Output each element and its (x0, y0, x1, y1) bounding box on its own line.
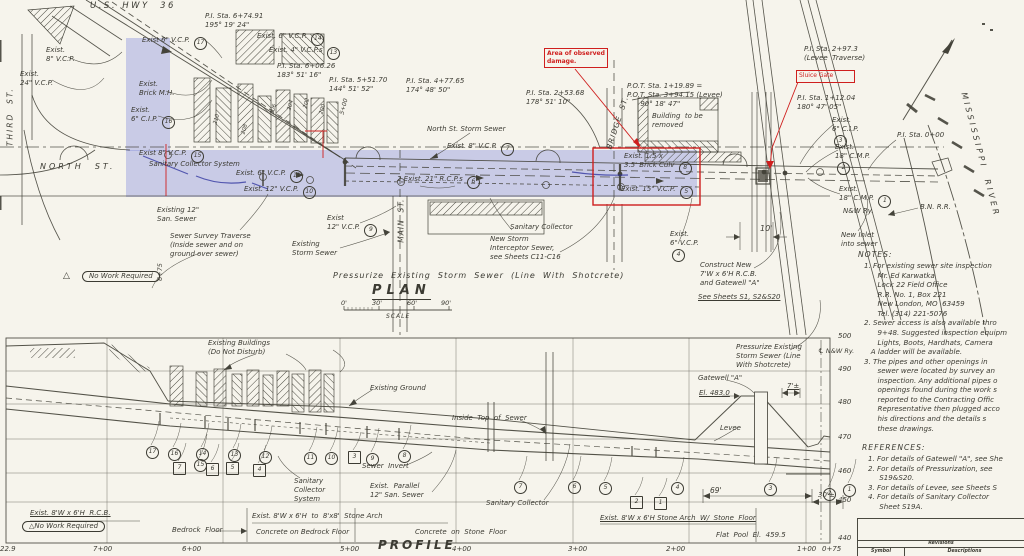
existing-buildings-label: Existing Buildings (Do Not Disturb) (208, 339, 270, 357)
sanitary-collector-mid-label: Sanitary Collector (510, 223, 573, 232)
exist-6in-vcp-14-label: Exist. 6" V.C.P. 14 (257, 32, 324, 46)
exist-8in-vcp-label: Exist. 8" V.C.P. (46, 46, 75, 64)
pipe-id-marker: 8 (679, 162, 692, 175)
profile-box-marker: 3 (348, 451, 361, 464)
elev-470: 470 (838, 433, 851, 442)
pipe-id-marker: 11 (290, 170, 303, 183)
dim-10ft-label: 10' (760, 224, 772, 234)
sewer-survey-traverse-label: Sewer Survey Traverse (Inside sewer and … (170, 232, 251, 258)
pi-sta-112-label: P.I. Sta. 1+12.04 180° 47' 05" (797, 94, 855, 112)
exist-4in-vcps-13-label: Exist. 4" V.C.P.s 13 (269, 46, 340, 60)
exist-12in-vcp-10-label: Exist. 12" V.C.P. 10 (244, 185, 316, 199)
profile-circle-marker: 6 (568, 481, 581, 494)
notes-title: NOTES: (858, 250, 892, 260)
pipe-id-marker: 13 (327, 47, 340, 60)
sanitary-collector-system-profile-label: Sanitary Collector System (294, 477, 325, 503)
gatewell-a-label: Gatewell "A" (698, 374, 742, 383)
title-block-revisions: Revisions (858, 540, 1024, 547)
elev-480: 480 (838, 398, 851, 407)
sanitary-collector-profile-label: Sanitary Collector (486, 499, 549, 508)
bn-rr-label: B.N. R.R. (920, 203, 951, 212)
pipe-id-marker: 16 (162, 116, 175, 129)
new-inlet-label: New Inlet into sewer (841, 231, 878, 249)
references-title: REFERENCES: (862, 443, 925, 453)
highlight-regions (126, 38, 697, 197)
exist-18in-cmp-2-label: Exist. 18" C.M.P. 2 (835, 143, 870, 175)
el-483-label: El. 483.0 (699, 389, 730, 398)
warn-triangle-plan: △ (63, 271, 70, 282)
profile-circle-marker: 2 (823, 488, 836, 501)
profile-circle-marker: 7 (514, 481, 527, 494)
exist-15in-vcp-5-label: Exist. 15" V.C.P. 5 (621, 185, 693, 199)
sta-700: 7+00 (93, 545, 112, 554)
profile-title: PROFILE (378, 538, 456, 553)
profile-grid (6, 338, 830, 543)
profile-box-marker: 6 (206, 463, 219, 476)
profile-box-marker: 1 (654, 497, 667, 510)
sta-229: 22.9 (0, 545, 16, 554)
pressurize-main-label: Pressurize Existing Storm Sewer (Line Wi… (333, 271, 624, 281)
notes-body: 1. For existing sewer site inspection Mr… (864, 261, 1024, 433)
bedrock-floor-label: Bedrock Floor (172, 526, 222, 535)
exist-8in-vcp-7-label: Exist. 8" V.C.P. 7 (447, 142, 514, 156)
pi-sta-253-label: P.I. Sta. 2+53.68 178° 51' 10" (526, 89, 584, 107)
profile-circle-marker: 17 (146, 446, 159, 459)
pi-sta-606-label: P.I. Sta. 6+06.26 183° 51' 16" (277, 62, 335, 80)
pipe-id-marker: 14 (311, 33, 324, 46)
exist-to-stone-arch-label: Exist. 8'W x 6'H to 8'x8' Stone Arch (252, 512, 383, 521)
concrete-stone-floor-label: Concrete on Stone Floor (415, 528, 506, 537)
exist-6in-vcp-11-label: Exist. 6" V.C.P. 11 (236, 169, 303, 183)
exist-6in-vcp-4-label: Exist. 6" V.C.P. 4 (670, 230, 699, 262)
existing-ground-label: Existing Ground (370, 384, 426, 393)
profile-box-marker: 5 (226, 462, 239, 475)
pipe-id-marker: 5 (680, 186, 693, 199)
sluice-gate-callout: Sluice Gate (796, 70, 855, 83)
building-to-be-removed-label: Building to be removed (652, 112, 703, 130)
elev-490: 490 (838, 365, 851, 374)
pipe-id-marker: 4 (672, 249, 685, 262)
plan-scale-caption: SCALE (386, 313, 410, 320)
title-block: Revisions Symbol Descriptions (857, 518, 1024, 556)
sta-675-marker-label: 6+75 (156, 258, 164, 286)
pipe-id-marker: 6 (467, 176, 480, 189)
elev-450: 450 (838, 496, 851, 505)
profile-circle-marker: 13 (228, 449, 241, 462)
exist-12in-vcp-9-label: Exist 12" V.C.P. 9 (327, 214, 377, 237)
title-block-symbol: Symbol (858, 548, 905, 556)
elev-440: 440 (838, 534, 851, 543)
profile-circle-marker: 4 (671, 482, 684, 495)
pipe-id-marker: 17 (194, 37, 207, 50)
exist-stone-arch-label: Exist. 8'W x 6'H Stone Arch W/ Stone Flo… (600, 514, 756, 523)
concrete-bedrock-floor-label: Concrete on Bedrock Floor (256, 528, 349, 537)
inside-top-of-sewer-label: Inside Top of Sewer (452, 414, 527, 423)
pi-sta-000-label: P.I. Sta. 0+00 (897, 131, 944, 140)
exist-brick-mh-label: Exist. Brick M.H. (139, 80, 175, 98)
sanitary-collector-system-plan-label: Sanitary Collector System (149, 160, 240, 169)
pipe-id-marker: 7 (501, 143, 514, 156)
pipe-id-marker: 10 (303, 186, 316, 199)
damage-callout: Area of observed damage. (544, 48, 608, 68)
profile-circle-marker: 16 (168, 448, 181, 461)
elev-500: 500 (838, 332, 851, 341)
profile-circle-marker: 12 (259, 451, 272, 464)
third-st-label: THIRD ST. (5, 82, 14, 152)
pi-sta-477-label: P.I. Sta. 4+77.65 174° 48' 50" (406, 77, 464, 95)
dim-7ft-label: 7'± (787, 382, 799, 391)
us-hwy-36-label: U.S. HWY 36 (90, 1, 176, 12)
exist-18in-cmp-1-label: Exist. 18" C.M.P. 1 (839, 185, 891, 208)
levee-label: Levee (720, 424, 741, 433)
nw-ry-label: N&W Ry. (843, 207, 874, 216)
pipe-id-marker: 2 (837, 162, 850, 175)
scale-tick-60: 60' (407, 299, 417, 307)
profile-circle-marker: 1 (843, 484, 856, 497)
north-st-storm-sewer-label: North St. Storm Sewer (427, 125, 506, 134)
profile-box-marker: 7 (173, 462, 186, 475)
sta-500: 5+00 (340, 545, 359, 554)
sta-200: 2+00 (666, 545, 685, 554)
title-block-descriptions: Descriptions (905, 548, 1024, 556)
dim-69ft-label: 69' (710, 486, 722, 495)
pi-sta-297-label: P.I. Sta. 2+97.3 (Levee Traverse) (804, 45, 865, 63)
cl-nw-ry-label: ℄ N&W Ry. (818, 347, 854, 355)
profile-circle-marker: 9 (366, 453, 379, 466)
profile-circle-marker: 5 (599, 482, 612, 495)
scale-tick-90: 90' (441, 299, 451, 307)
profile-circle-marker: 8 (398, 450, 411, 463)
profile-box-marker: 4 (253, 464, 266, 477)
title-block-blank (858, 519, 1024, 540)
exist-21in-rcps-6-label: 2 Exist. 21" R.C.P.s 6 (397, 175, 480, 189)
plan-title: PLAN (372, 283, 431, 300)
construct-new-label: Construct New 7'W x 6'H R.C.B. and Gatew… (700, 261, 760, 287)
sta-600: 6+00 (182, 545, 201, 554)
exist-rcb-label: Exist. 8'W x 6'H R.C.B. (30, 509, 111, 518)
exist-24in-vcp-label: Exist. 24" V.C.P. (20, 70, 53, 88)
exist-6in-cip-16-label: Exist. 6" C.I.P. 16 (131, 106, 175, 129)
references-body: 1. For details of Gatewell "A", see She … (868, 454, 1024, 511)
scale-tick-30: 30' (372, 299, 382, 307)
no-work-required-profile-label: △No Work Required (22, 521, 105, 532)
sta-400: 4+00 (452, 545, 471, 554)
sta-075: 0+75 (822, 545, 841, 554)
profile-circle-marker: 3 (764, 483, 777, 496)
sta-100: 1+00 (797, 545, 816, 554)
pot-sta-label: P.O.T. Sta. 1+19.89 = P.O.T. Sta. 3+94.1… (627, 82, 723, 108)
elev-460: 460 (838, 467, 851, 476)
profile-circle-marker: 10 (325, 452, 338, 465)
profile-box-marker: 2 (630, 496, 643, 509)
exist-brick-culv-8-label: Exist. 1.5 x 3.5' Brick Culv 8 (624, 152, 692, 175)
pi-sta-551-label: P.I. Sta. 5+51.70 144° 51' 52" (329, 76, 387, 94)
exist-parallel-san-sewer-label: Exist. Parallel 12" San. Sewer (370, 482, 424, 500)
new-storm-interceptor-label: New Storm Interceptor Sewer, see Sheets … (490, 235, 561, 261)
pressurize-2-label: Pressurize Existing Storm Sewer (Line Wi… (736, 343, 802, 369)
north-st-label: NORTH ST. (40, 162, 115, 172)
existing-storm-sewer-label: Existing Storm Sewer (292, 240, 337, 258)
sta-300: 3+00 (568, 545, 587, 554)
pipe-id-marker: 1 (878, 195, 891, 208)
flat-pool-label: Flat Pool El. 459.5 (716, 531, 786, 540)
pipe-id-marker: 9 (364, 224, 377, 237)
main-st-label: MAIN ST. (396, 191, 405, 251)
scale-tick-0: 0' (341, 299, 347, 307)
existing-12in-san-sewer-label: Existing 12" San. Sewer (157, 206, 199, 224)
exist-6in-vcp-17-label: Exist 6" V.C.P. 17 (142, 36, 207, 50)
profile-circle-marker: 11 (304, 452, 317, 465)
pi-sta-674-label: P.I. Sta. 6+74.91 195° 19' 24" (205, 12, 263, 30)
profile-linework (6, 338, 843, 543)
no-work-required-plan-label: No Work Required (82, 271, 160, 282)
drawing-sheet: PLAN SCALE PROFILE Area of observed dama… (0, 0, 1024, 556)
see-sheets-label: See Sheets S1, S2&S20 (698, 293, 780, 302)
